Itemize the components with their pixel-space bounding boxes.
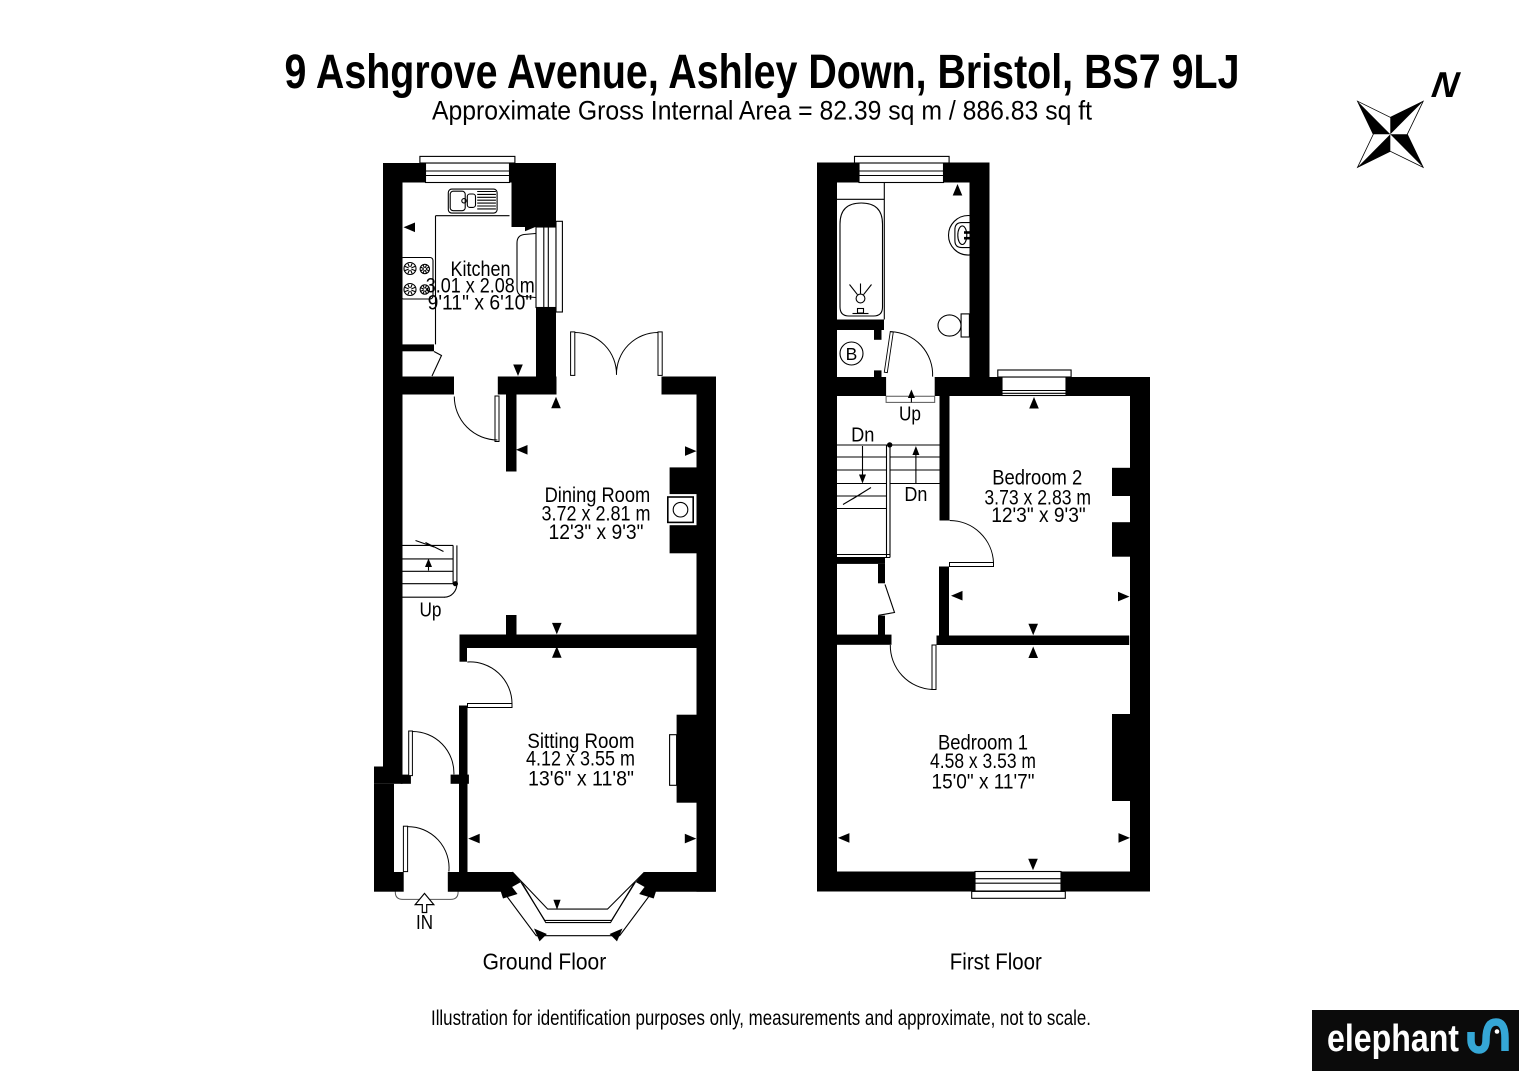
svg-text:4.58 x 3.53 m: 4.58 x 3.53 m xyxy=(930,750,1036,773)
svg-text:First Floor: First Floor xyxy=(950,948,1042,974)
svg-text:13'6" x 11'8": 13'6" x 11'8" xyxy=(528,768,634,791)
svg-text:Up: Up xyxy=(899,404,921,426)
svg-text:12'3" x 9'3": 12'3" x 9'3" xyxy=(549,521,644,544)
svg-text:Approximate Gross Internal Are: Approximate Gross Internal Area = 82.39 … xyxy=(432,96,1092,126)
svg-text:Ground Floor: Ground Floor xyxy=(483,948,607,974)
svg-text:Up: Up xyxy=(420,600,442,622)
svg-text:9'11" x 6'10": 9'11" x 6'10" xyxy=(428,291,533,314)
svg-text:IN: IN xyxy=(416,912,433,934)
svg-text:9 Ashgrove Avenue, Ashley Down: 9 Ashgrove Avenue, Ashley Down, Bristol,… xyxy=(285,46,1240,99)
svg-text:B: B xyxy=(846,344,858,364)
svg-text:Illustration for identificatio: Illustration for identification purposes… xyxy=(431,1007,1091,1030)
svg-text:Dn: Dn xyxy=(851,424,874,446)
svg-text:15'0" x 11'7": 15'0" x 11'7" xyxy=(932,771,1035,794)
svg-text:Dn: Dn xyxy=(904,484,927,506)
svg-text:12'3" x 9'3": 12'3" x 9'3" xyxy=(991,504,1085,527)
svg-text:elephant: elephant xyxy=(1327,1018,1459,1060)
